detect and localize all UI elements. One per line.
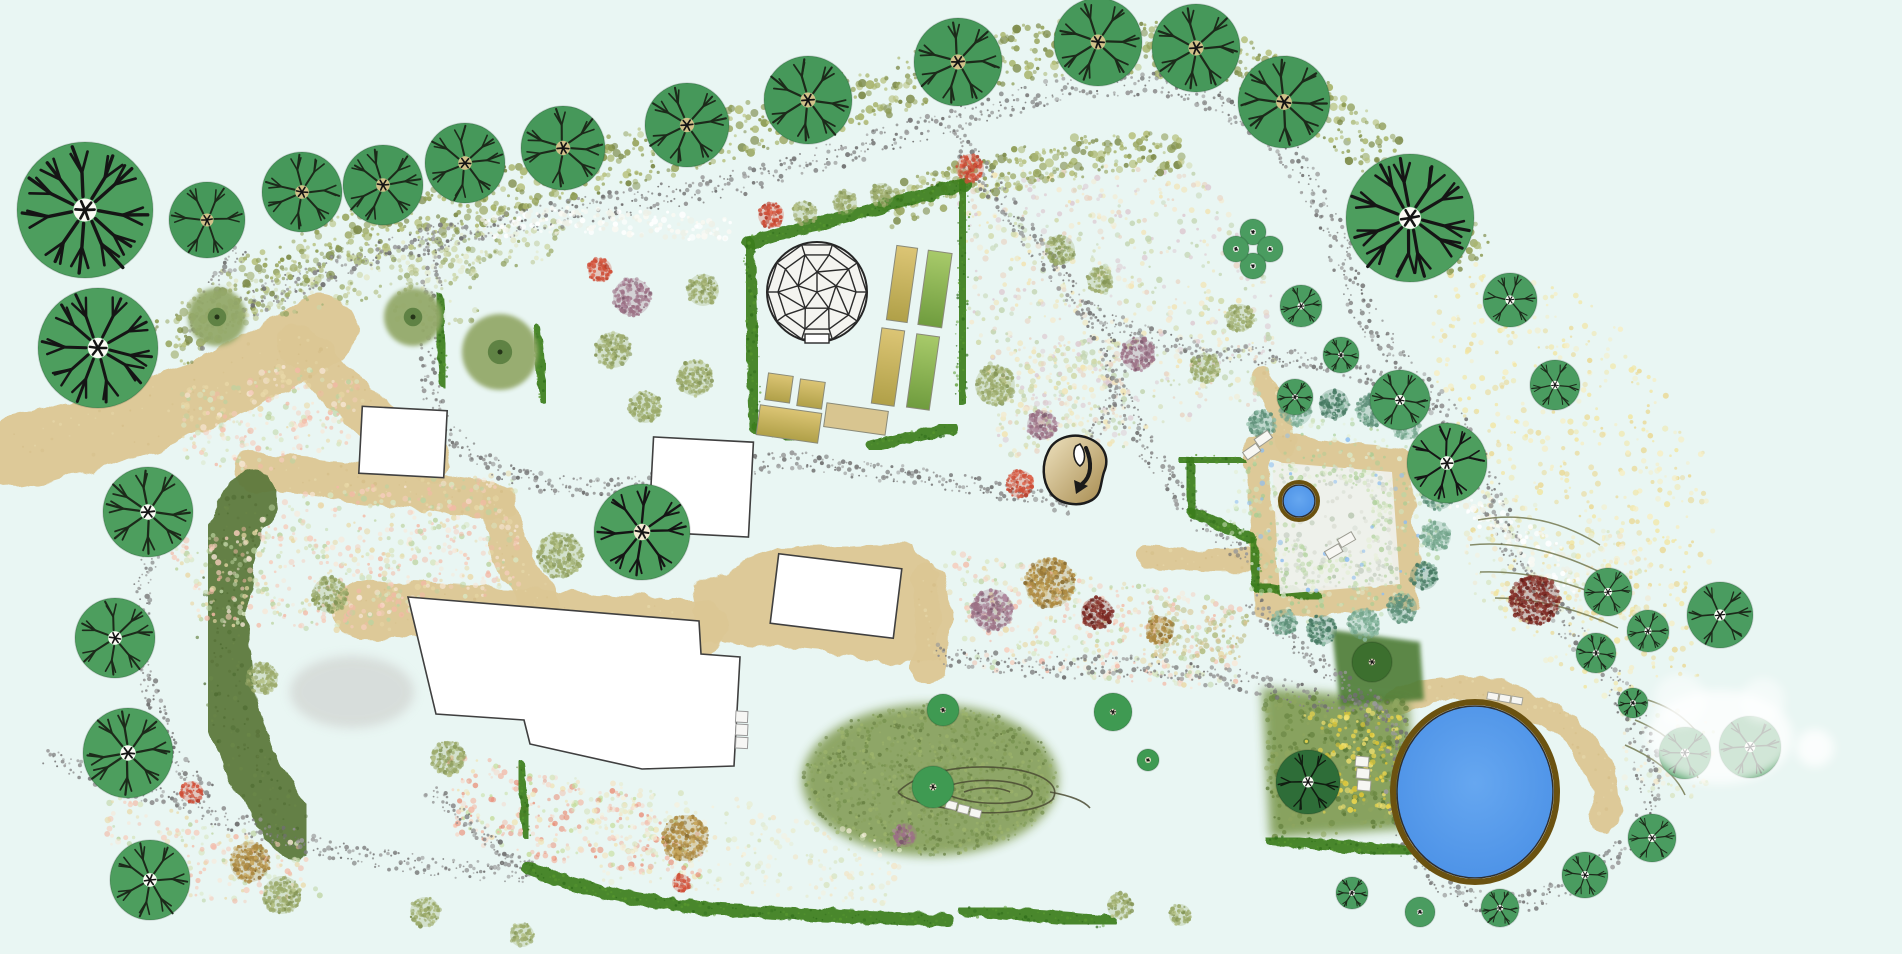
olive-tree: [462, 314, 538, 390]
raised-bed: [906, 334, 939, 410]
tree: [1238, 56, 1330, 148]
tree: [169, 182, 245, 258]
tree: [1576, 633, 1616, 673]
jetty: [1355, 756, 1369, 767]
tree: [110, 840, 190, 920]
raised-bed: [797, 379, 826, 409]
tree: [1483, 273, 1537, 327]
raised-bed: [886, 245, 917, 322]
tree: [912, 766, 954, 808]
house-steps: [735, 724, 748, 736]
tree: [38, 288, 158, 408]
tree: [1407, 423, 1487, 503]
tree: [1054, 0, 1142, 86]
jetty: [1356, 768, 1370, 779]
tree: [1094, 693, 1132, 731]
tree: [1280, 285, 1322, 327]
tree: [1277, 379, 1313, 415]
tree: [1584, 568, 1632, 616]
tree: [1530, 360, 1580, 410]
house-steps: [735, 737, 748, 749]
raised-bed: [871, 328, 904, 406]
tree: [1336, 877, 1368, 909]
tree: [1687, 582, 1753, 648]
tree: [103, 467, 193, 557]
geodesic-dome-greenhouse: [767, 242, 867, 343]
tree: [927, 694, 959, 726]
tree: [1628, 814, 1676, 862]
tree: [1152, 4, 1240, 92]
raised-bed: [756, 405, 822, 443]
tree: [1346, 154, 1474, 282]
beach-bench: [1511, 696, 1523, 705]
tree: [1323, 337, 1359, 373]
beach-bench: [1487, 692, 1499, 701]
tree: [1276, 750, 1340, 814]
tree: [1352, 642, 1392, 682]
olive-tree: [188, 288, 246, 346]
tree: [594, 484, 690, 580]
garden-plan-layers: [13, 0, 1834, 948]
tree: [1370, 370, 1430, 430]
tree: [83, 708, 173, 798]
raised-bed: [765, 373, 794, 403]
tree: [425, 123, 505, 203]
tree: [1618, 688, 1648, 718]
tree: [75, 598, 155, 678]
tree: [1223, 236, 1249, 262]
tree: [521, 106, 605, 190]
house-steps: [735, 711, 748, 723]
white-overlays: [1647, 674, 1834, 784]
raised-bed: [824, 403, 889, 435]
tree: [262, 152, 342, 232]
tree: [1405, 897, 1435, 927]
tree: [17, 142, 153, 278]
outbuilding-1: [359, 406, 447, 477]
tree: [1481, 889, 1519, 927]
olive-tree: [384, 288, 442, 346]
jetty: [1357, 780, 1371, 791]
walled-kitchen-garden: [756, 242, 952, 443]
tree: [343, 145, 423, 225]
tree: [1627, 610, 1669, 652]
tree: [1137, 749, 1159, 771]
outbuilding-3: [770, 554, 902, 639]
tree: [645, 83, 729, 167]
garden-plan: [0, 0, 1902, 954]
tree: [764, 56, 852, 144]
tree: [1562, 852, 1608, 898]
garden-plan-canvas: [0, 0, 1902, 954]
tree: [914, 18, 1002, 106]
swimming-pond: [1393, 702, 1557, 882]
beach-bench: [1499, 694, 1511, 703]
boulder-sculpture: [1044, 436, 1107, 504]
raised-bed: [918, 250, 952, 328]
